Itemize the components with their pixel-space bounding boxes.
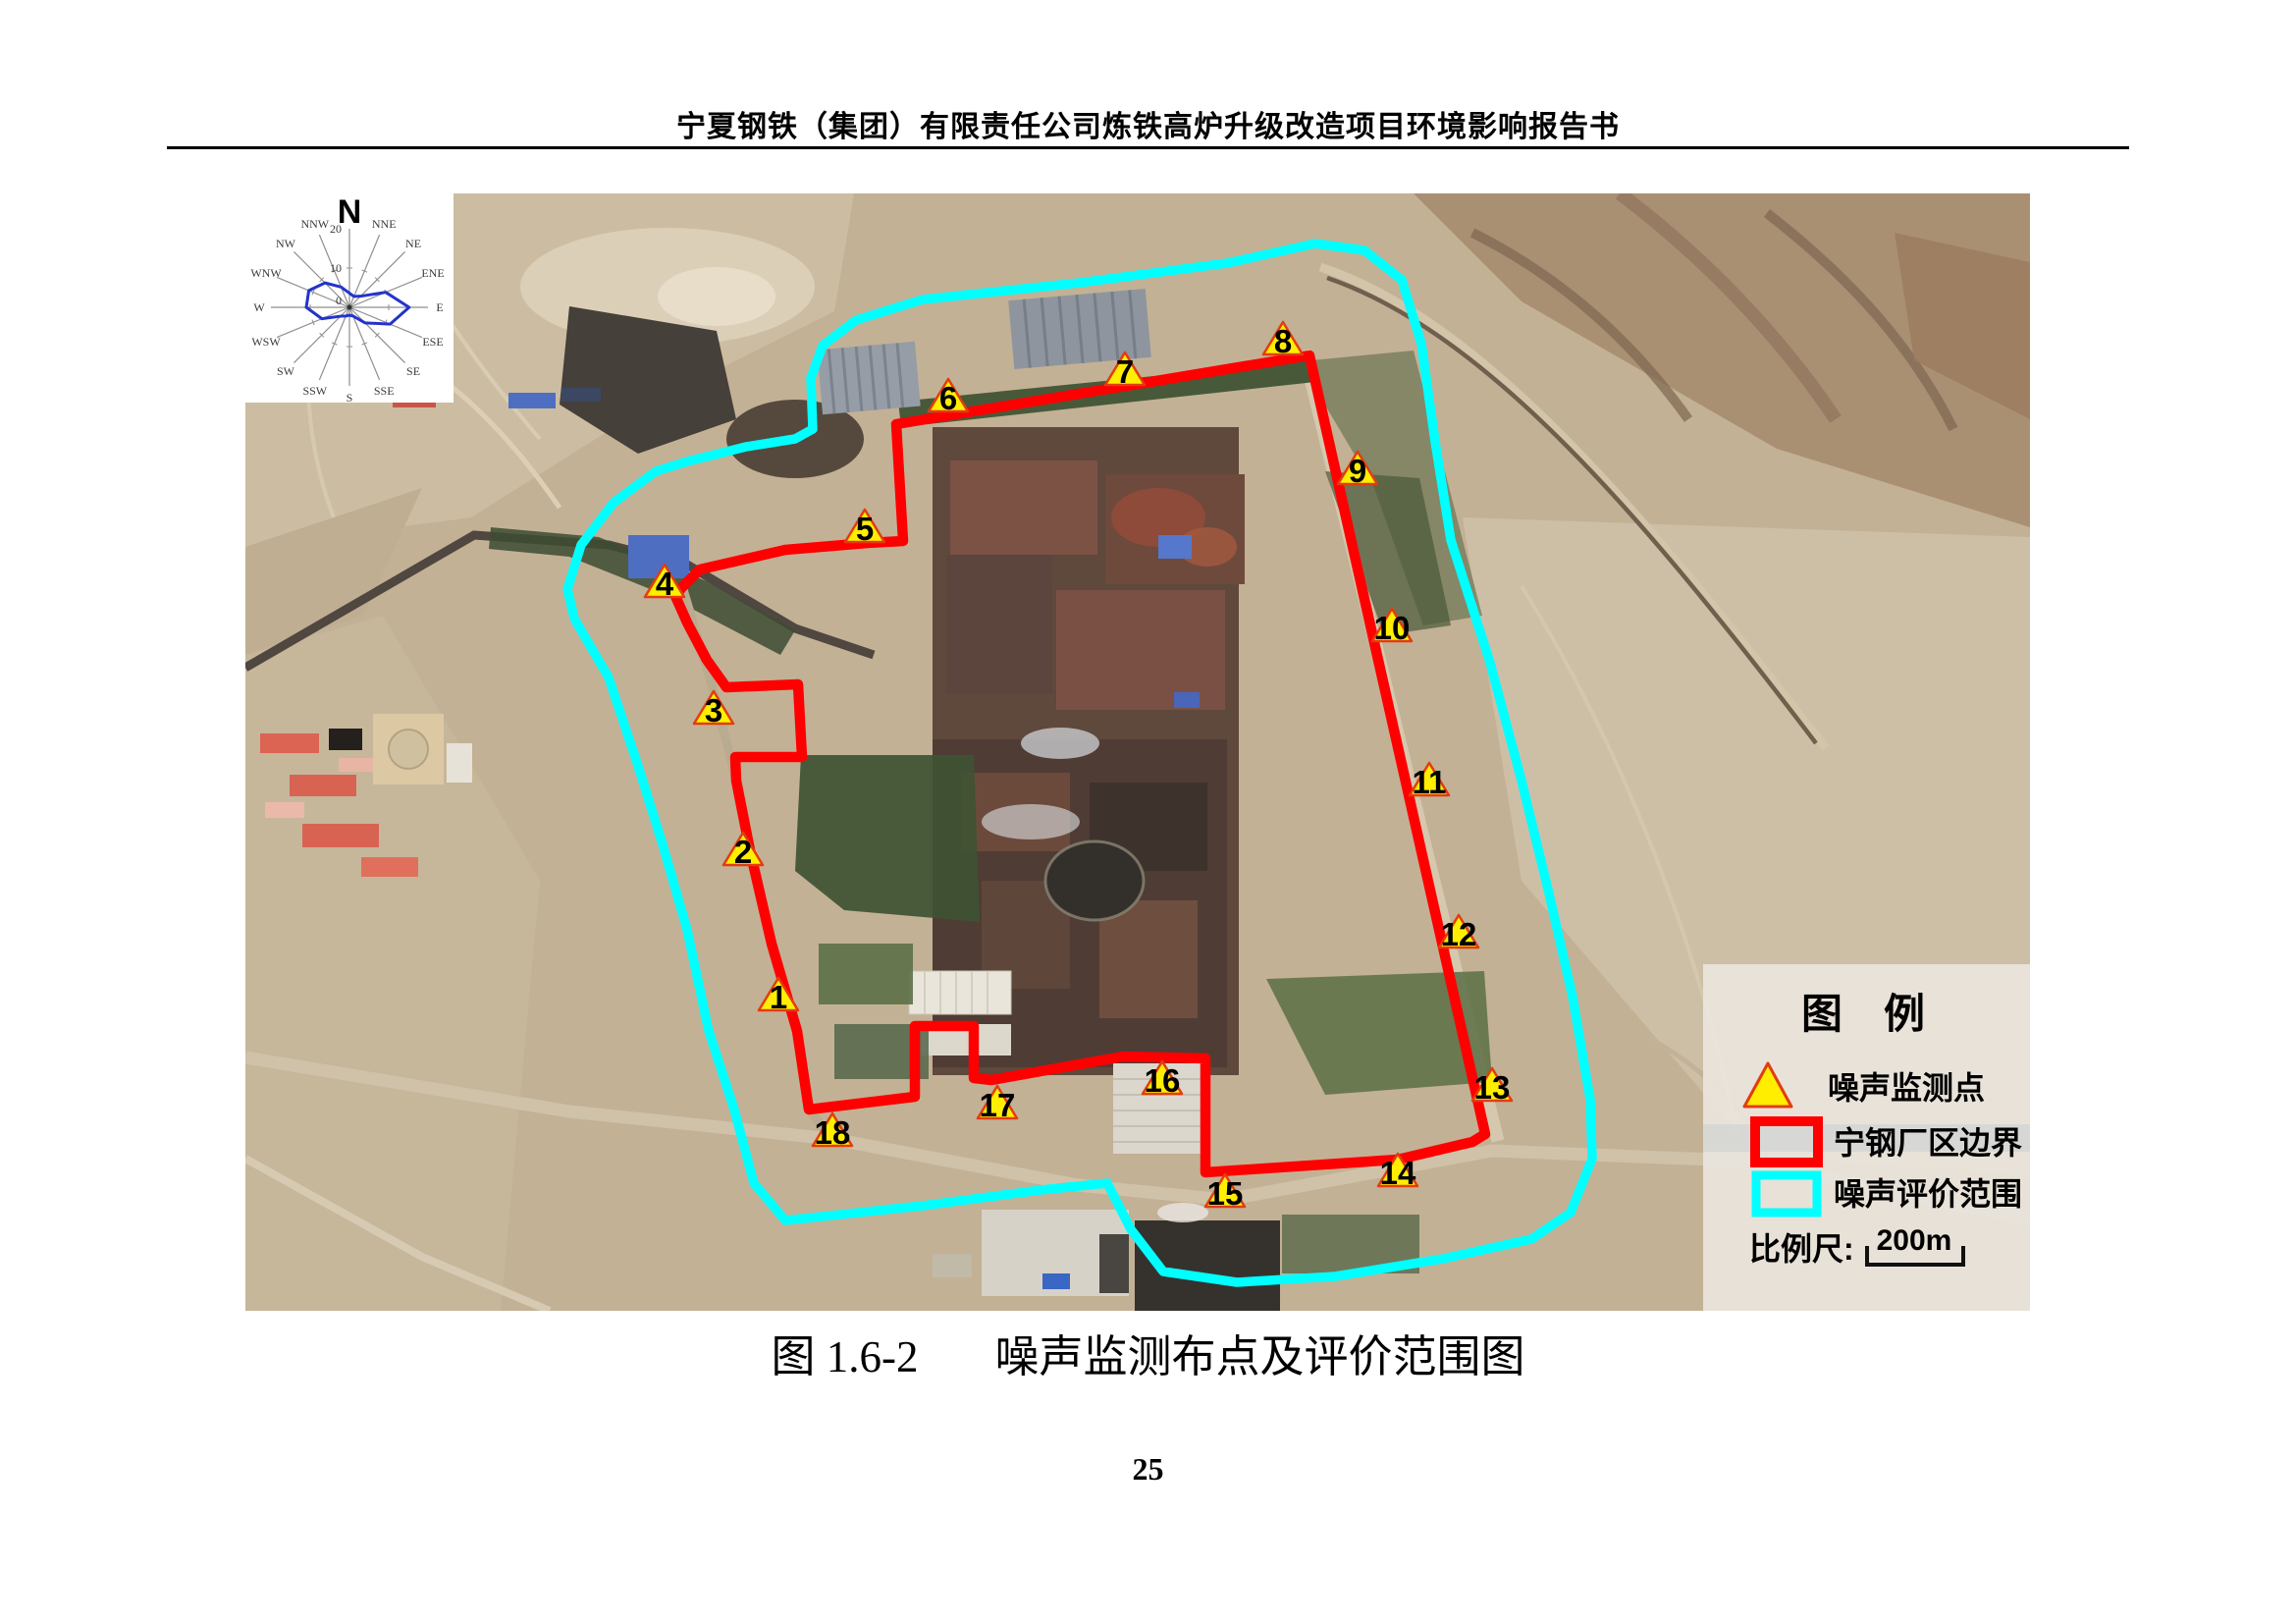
svg-text:4: 4: [656, 566, 674, 602]
svg-text:18: 18: [815, 1114, 851, 1151]
noise-monitor-point-15: 15: [1205, 1174, 1245, 1212]
svg-text:E: E: [436, 300, 443, 314]
report-page: 宁夏钢铁（集团）有限责任公司炼铁高炉升级改造项目环境影响报告书: [0, 0, 2296, 1624]
header-rule: [167, 146, 2129, 149]
noise-monitor-point-16: 16: [1143, 1061, 1182, 1099]
svg-text:SSW: SSW: [302, 384, 327, 398]
figure-caption-title: 噪声监测布点及评价范围图: [994, 1332, 1524, 1381]
svg-text:W: W: [253, 300, 265, 314]
svg-text:6: 6: [939, 380, 957, 416]
scale-label: 比例尺:: [1749, 1231, 1854, 1267]
report-header-title: 宁夏钢铁（集团）有限责任公司炼铁高炉升级改造项目环境影响报告书: [0, 102, 2296, 145]
svg-text:NE: NE: [405, 237, 421, 250]
svg-text:9: 9: [1349, 453, 1366, 489]
svg-text:SSE: SSE: [374, 384, 395, 398]
wind-rose: N NNENEENEEESESESSESSSWSWWSWWWNWNWNNW010…: [245, 193, 454, 405]
svg-text:SW: SW: [277, 364, 295, 378]
figure-caption-label: 图 1.6-2: [771, 1332, 918, 1381]
figure-caption: 图 1.6-2噪声监测布点及评价范围图: [0, 1321, 2296, 1384]
noise-monitoring-map: 123456789101112131415161718 N NNENEENEEE…: [245, 193, 2030, 1311]
noise-monitor-point-14: 14: [1378, 1154, 1417, 1191]
svg-text:5: 5: [856, 511, 874, 547]
svg-text:8: 8: [1274, 323, 1292, 359]
svg-text:0: 0: [336, 294, 342, 307]
svg-text:NW: NW: [276, 237, 296, 250]
svg-text:ENE: ENE: [421, 266, 444, 280]
svg-text:WSW: WSW: [251, 335, 281, 349]
legend-evaluation-range-label: 噪声评价范围: [1834, 1176, 2022, 1212]
legend: 图 例 噪声监测点 宁钢厂区边界 噪声评价范围 比例尺: 200m: [1703, 964, 2030, 1311]
svg-text:7: 7: [1116, 353, 1134, 390]
svg-text:16: 16: [1145, 1062, 1181, 1099]
satellite-map: 123456789101112131415161718 N NNENEENEEE…: [245, 193, 2030, 1311]
scale-value: 200m: [1877, 1224, 1952, 1257]
svg-text:S: S: [347, 391, 353, 405]
svg-text:20: 20: [330, 222, 342, 236]
svg-text:11: 11: [1413, 764, 1447, 800]
noise-monitor-point-18: 18: [813, 1113, 852, 1151]
svg-text:15: 15: [1207, 1175, 1244, 1212]
svg-text:10: 10: [1374, 610, 1411, 646]
svg-text:2: 2: [734, 834, 752, 870]
svg-text:NNE: NNE: [372, 217, 397, 231]
legend-factory-boundary-label: 宁钢厂区边界: [1834, 1125, 2022, 1161]
legend-title: 图 例: [1801, 991, 1925, 1037]
svg-text:10: 10: [330, 261, 342, 275]
svg-text:17: 17: [980, 1087, 1016, 1123]
noise-monitor-point-11: 11: [1410, 763, 1449, 800]
svg-text:13: 13: [1474, 1069, 1511, 1106]
svg-text:3: 3: [705, 692, 722, 729]
svg-text:SE: SE: [406, 364, 420, 378]
legend-monitor-point-label: 噪声监测点: [1828, 1070, 1985, 1106]
svg-text:1: 1: [770, 979, 787, 1015]
svg-text:NNW: NNW: [300, 217, 329, 231]
noise-monitor-point-10: 10: [1372, 609, 1412, 646]
svg-text:12: 12: [1441, 916, 1477, 952]
svg-text:WNW: WNW: [250, 266, 282, 280]
noise-monitor-point-12: 12: [1439, 915, 1478, 952]
noise-monitor-point-13: 13: [1472, 1068, 1512, 1106]
page-number: 25: [0, 1451, 2296, 1488]
svg-text:14: 14: [1380, 1155, 1416, 1191]
svg-text:ESE: ESE: [422, 335, 443, 349]
noise-monitor-point-17: 17: [978, 1086, 1017, 1123]
